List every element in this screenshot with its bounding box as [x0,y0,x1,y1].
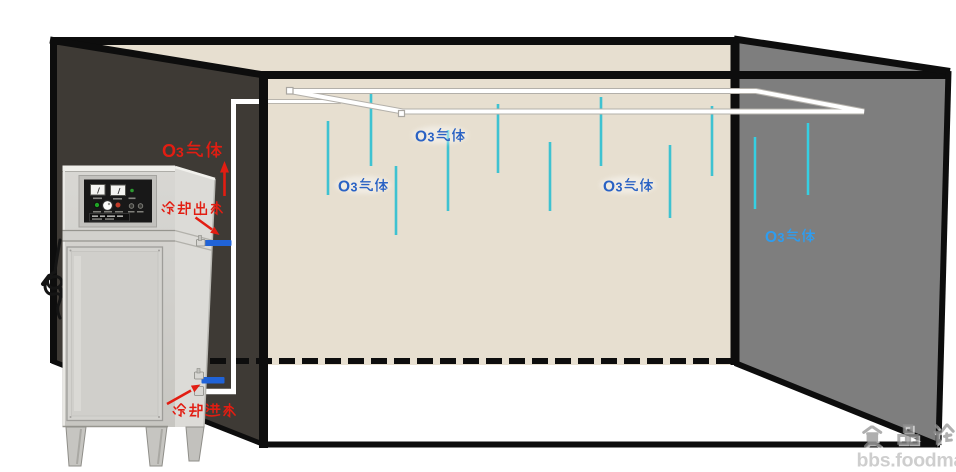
svg-text:3: 3 [778,231,785,245]
svg-text:O: O [162,141,176,161]
svg-text:3: 3 [351,181,358,195]
svg-text:O: O [338,179,350,196]
svg-text:bbs.foodma: bbs.foodma [857,450,956,472]
svg-text:O: O [415,129,427,146]
svg-text:3: 3 [176,144,184,160]
svg-text:3: 3 [616,181,623,195]
svg-text:3: 3 [428,131,435,145]
svg-text:O: O [765,229,777,246]
svg-text:O: O [603,179,615,196]
